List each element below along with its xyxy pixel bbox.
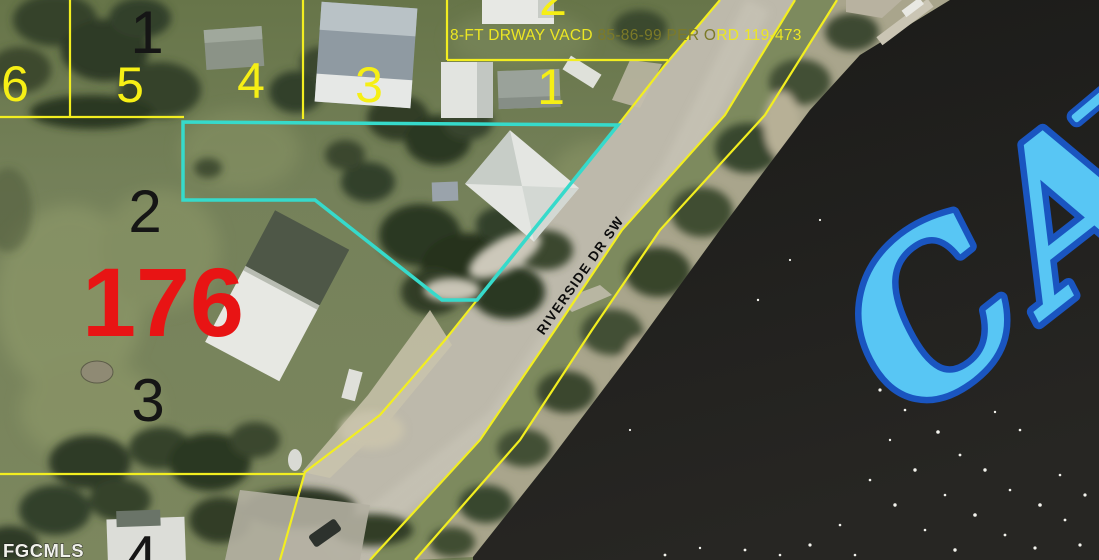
lot-number-yellow-3: 3: [355, 57, 383, 113]
small-shed-roof: [432, 182, 459, 202]
block-number: 176: [82, 248, 244, 357]
mls-watermark: FGCMLS: [3, 540, 84, 560]
plat-note-part1: 8-FT DRWAY VACD: [450, 27, 597, 44]
lot-number-yellow-1: 1: [537, 59, 565, 115]
house-roof: [441, 62, 493, 118]
lot-number-yellow-6: 6: [1, 56, 29, 112]
lot-number-black-2: 2: [128, 178, 161, 245]
plat-note-part2: 85-86-99 PER O: [597, 27, 716, 44]
lot-number-yellow-2: 2: [539, 0, 567, 26]
aerial-map-canvas: CA 6 5 4 3 1 2 1 2 3 4 176 8-FT DRWAY VA…: [0, 0, 1099, 560]
plat-note-part3: RD 119-473: [716, 27, 801, 44]
lot-number-black-1: 1: [130, 0, 163, 66]
lot-number-black-4: 4: [124, 524, 157, 560]
aerial-map: CA 6 5 4 3 1 2 1 2 3 4 176 8-FT DRWAY VA…: [0, 0, 1099, 560]
plat-note: 8-FT DRWAY VACD 85-86-99 PER ORD 119-473: [450, 27, 802, 44]
lot-number-black-3: 3: [131, 367, 164, 434]
lot-number-yellow-4: 4: [237, 53, 265, 109]
yard-debris: [81, 361, 113, 383]
parked-car: [288, 449, 302, 471]
